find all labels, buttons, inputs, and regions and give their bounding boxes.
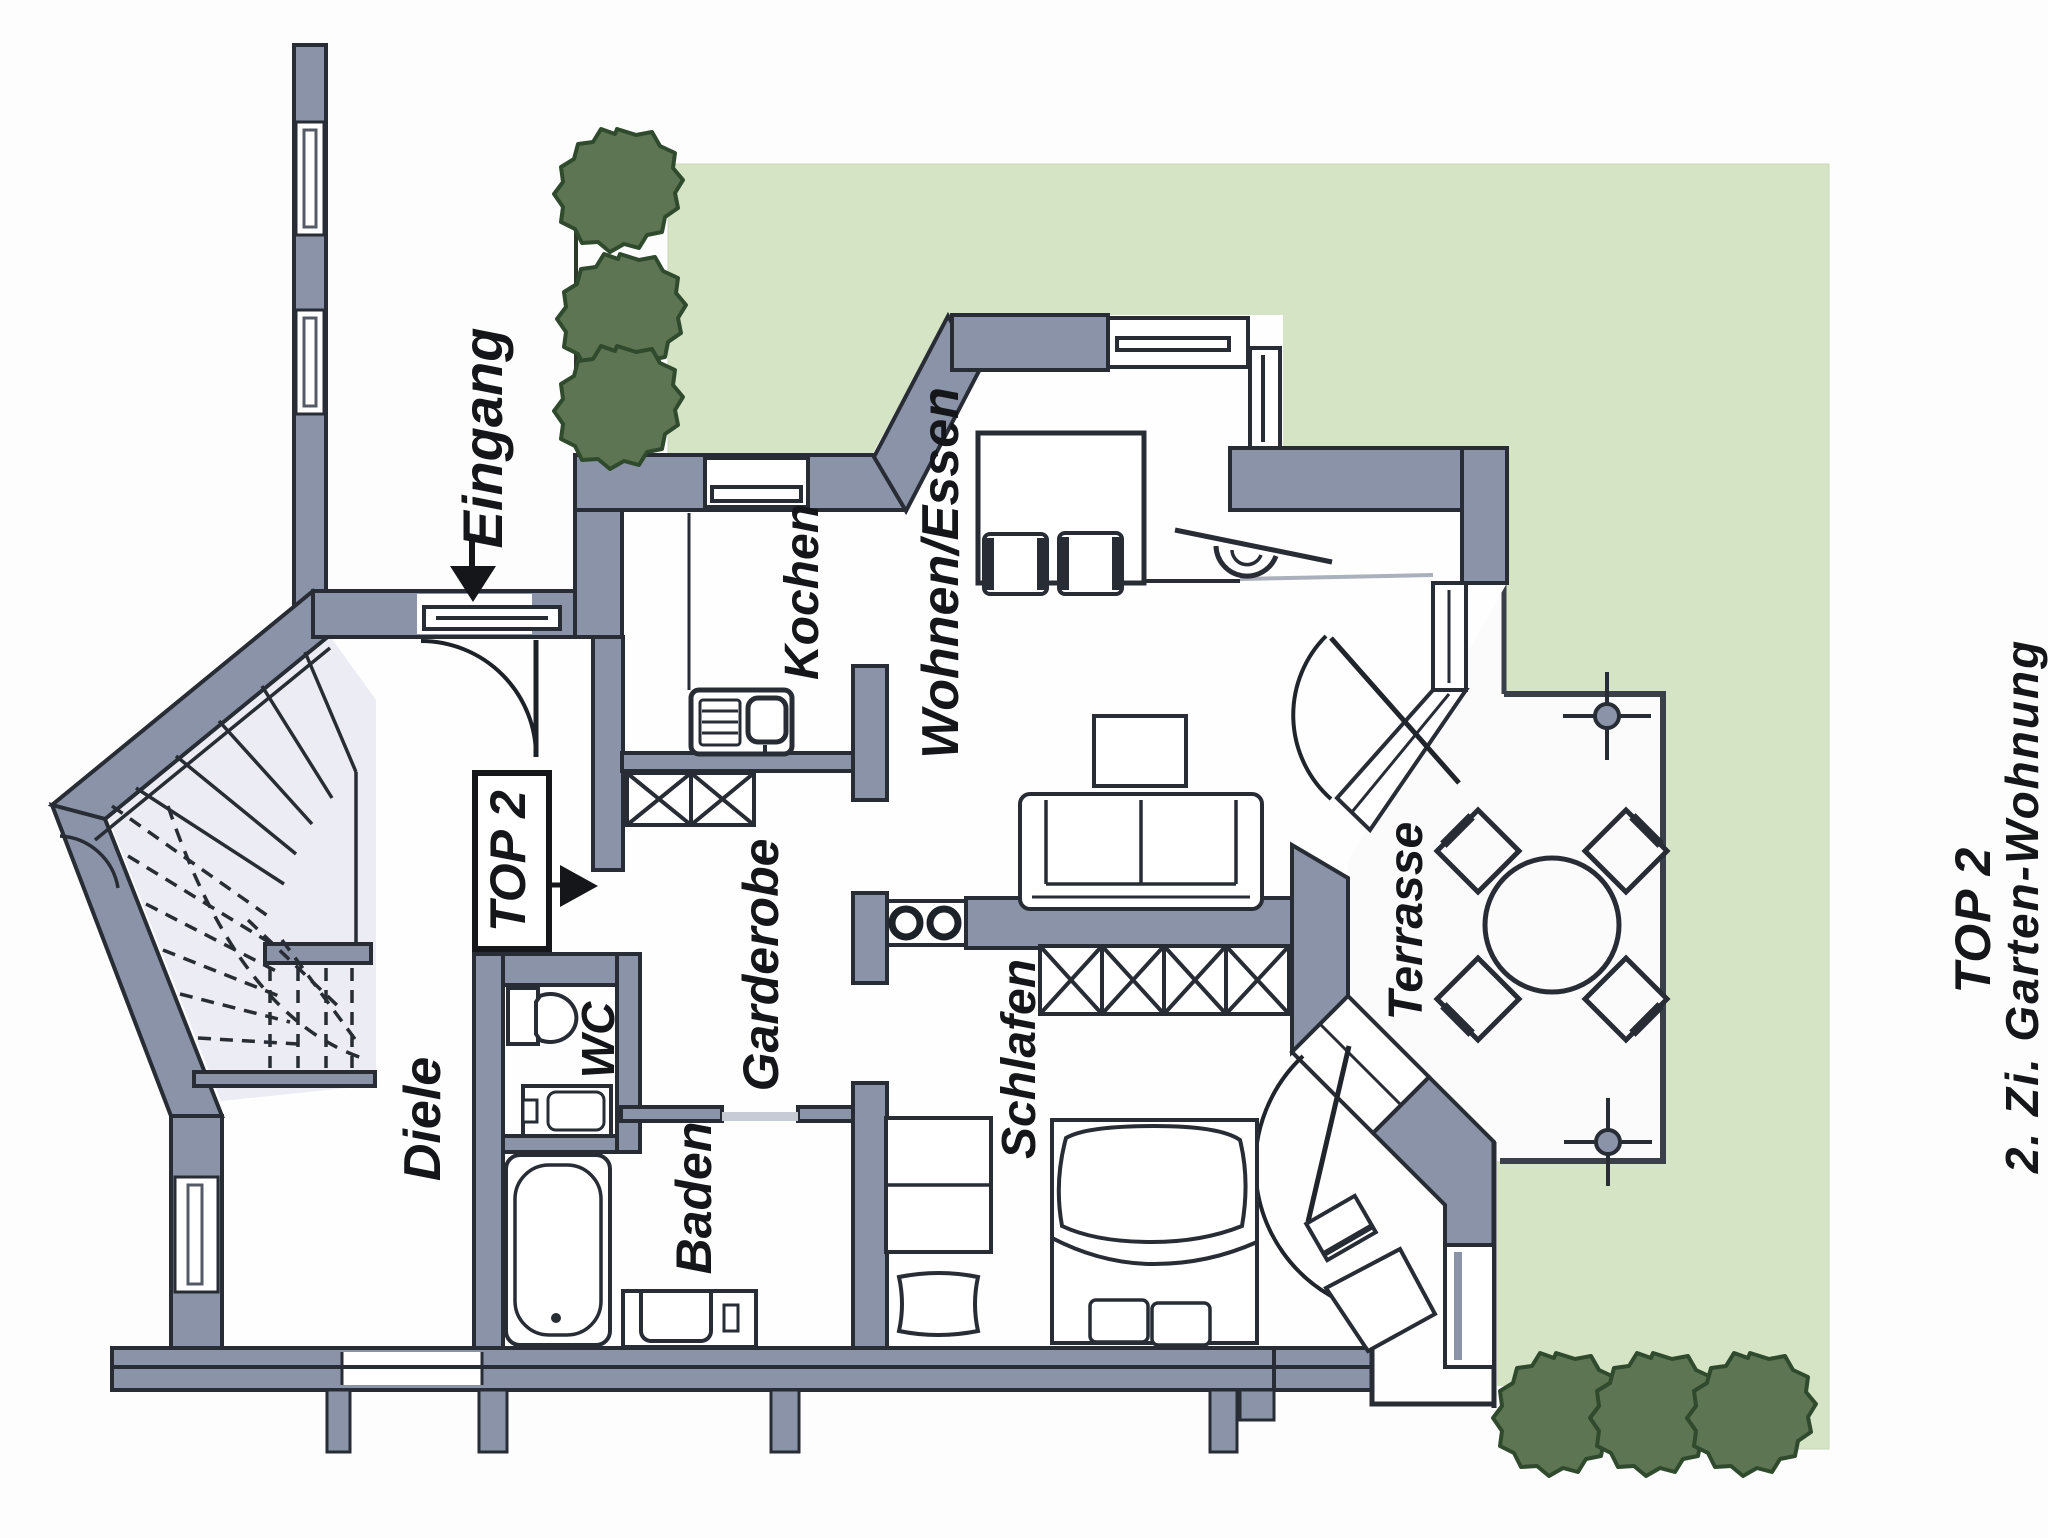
svg-text:Kochen: Kochen: [776, 504, 829, 680]
svg-text:TOP 2: TOP 2: [1945, 847, 2001, 994]
svg-text:Terrasse: Terrasse: [1380, 822, 1433, 1020]
svg-text:Eingang: Eingang: [451, 328, 514, 549]
svg-text:Garderobe: Garderobe: [733, 839, 789, 1092]
svg-text:Schlafen: Schlafen: [993, 959, 1046, 1159]
svg-text:WC: WC: [572, 1001, 624, 1078]
svg-text:2. Zi. Garten-Wohnung: 2. Zi. Garten-Wohnung: [1996, 639, 2048, 1174]
svg-text:Baden: Baden: [666, 1122, 722, 1275]
svg-text:Wohnen/Essen: Wohnen/Essen: [912, 387, 970, 759]
svg-text:Diele: Diele: [394, 1057, 452, 1181]
svg-text:TOP 2: TOP 2: [480, 790, 536, 932]
